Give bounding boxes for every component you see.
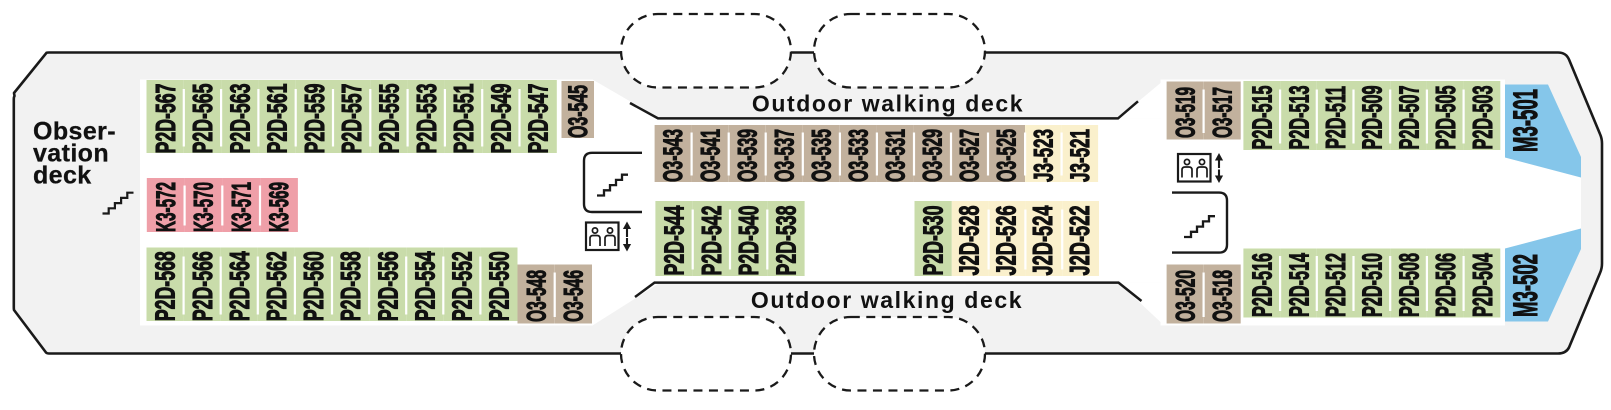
- svg-text:J2D-526: J2D-526: [992, 206, 1023, 276]
- svg-text:J3-523: J3-523: [1028, 129, 1058, 182]
- svg-text:P2D-509: P2D-509: [1356, 86, 1388, 150]
- svg-text:P2D-565: P2D-565: [187, 84, 218, 154]
- svg-text:deck: deck: [33, 162, 92, 190]
- svg-text:P2D-554: P2D-554: [409, 251, 440, 321]
- svg-text:P2D-558: P2D-558: [335, 251, 366, 321]
- svg-text:P2D-513: P2D-513: [1283, 86, 1315, 150]
- svg-text:P2D-556: P2D-556: [372, 251, 403, 321]
- svg-text:O3-529: O3-529: [917, 129, 947, 182]
- svg-text:P2D-561: P2D-561: [261, 84, 292, 154]
- svg-text:Outdoor walking deck: Outdoor walking deck: [752, 90, 1024, 116]
- svg-text:K3-572: K3-572: [150, 182, 181, 232]
- svg-text:P2D-515: P2D-515: [1246, 85, 1278, 149]
- svg-text:J2D-522: J2D-522: [1065, 206, 1096, 276]
- svg-text:P2D-506: P2D-506: [1429, 253, 1461, 317]
- svg-text:P2D-503: P2D-503: [1466, 86, 1498, 150]
- svg-text:P2D-530: P2D-530: [918, 206, 949, 276]
- svg-text:P2D-555: P2D-555: [373, 84, 404, 154]
- svg-text:P2D-507: P2D-507: [1393, 86, 1425, 150]
- svg-text:P2D-540: P2D-540: [733, 206, 764, 276]
- svg-text:P2D-560: P2D-560: [298, 251, 329, 321]
- svg-text:P2D-516: P2D-516: [1246, 253, 1278, 317]
- svg-text:O3-545: O3-545: [563, 85, 593, 138]
- svg-text:P2D-568: P2D-568: [150, 251, 181, 321]
- svg-text:P2D-511: P2D-511: [1319, 86, 1351, 149]
- svg-text:P2D-514: P2D-514: [1283, 253, 1315, 317]
- svg-text:P2D-504: P2D-504: [1466, 253, 1498, 317]
- svg-text:M3-502: M3-502: [1506, 254, 1544, 317]
- svg-text:P2D-510: P2D-510: [1356, 253, 1388, 317]
- svg-text:P2D-552: P2D-552: [446, 251, 477, 321]
- svg-text:P2D-505: P2D-505: [1429, 85, 1461, 149]
- svg-text:K3-571: K3-571: [226, 182, 257, 232]
- svg-text:O3-543: O3-543: [658, 129, 688, 182]
- svg-text:O3-517: O3-517: [1207, 87, 1238, 138]
- svg-text:P2D-542: P2D-542: [696, 206, 727, 276]
- svg-text:P2D-544: P2D-544: [658, 206, 689, 276]
- svg-text:P2D-551: P2D-551: [448, 84, 479, 154]
- svg-text:J2D-528: J2D-528: [955, 206, 986, 276]
- svg-text:O3-546: O3-546: [558, 270, 589, 322]
- svg-text:O3-535: O3-535: [806, 129, 836, 182]
- svg-text:K3-569: K3-569: [264, 182, 295, 232]
- svg-text:P2D-512: P2D-512: [1319, 253, 1351, 317]
- svg-text:J2D-524: J2D-524: [1028, 205, 1059, 276]
- svg-text:O3-525: O3-525: [991, 129, 1021, 182]
- svg-text:M3-501: M3-501: [1506, 89, 1544, 152]
- svg-text:P2D-564: P2D-564: [224, 251, 255, 321]
- svg-text:P2D-549: P2D-549: [485, 84, 516, 154]
- svg-text:P2D-538: P2D-538: [770, 206, 801, 276]
- svg-text:O3-533: O3-533: [843, 129, 873, 182]
- svg-text:O3-531: O3-531: [880, 129, 910, 182]
- svg-text:P2D-508: P2D-508: [1393, 253, 1425, 317]
- svg-text:O3-537: O3-537: [769, 129, 799, 182]
- svg-text:O3-548: O3-548: [521, 270, 552, 322]
- svg-text:P2D-547: P2D-547: [523, 84, 554, 154]
- svg-text:P2D-562: P2D-562: [261, 251, 292, 321]
- svg-text:P2D-559: P2D-559: [299, 84, 330, 154]
- svg-text:K3-570: K3-570: [188, 182, 219, 232]
- svg-text:P2D-566: P2D-566: [187, 251, 218, 321]
- svg-text:O3-541: O3-541: [695, 129, 725, 182]
- svg-text:O3-518: O3-518: [1207, 270, 1238, 322]
- svg-text:J3-521: J3-521: [1065, 129, 1095, 182]
- svg-text:O3-520: O3-520: [1170, 270, 1201, 322]
- svg-text:P2D-550: P2D-550: [483, 251, 514, 321]
- svg-text:P2D-563: P2D-563: [224, 84, 255, 154]
- svg-text:Outdoor walking deck: Outdoor walking deck: [751, 287, 1023, 313]
- svg-text:O3-527: O3-527: [954, 129, 984, 182]
- svg-text:P2D-557: P2D-557: [336, 84, 367, 154]
- svg-text:P2D-567: P2D-567: [150, 84, 181, 154]
- svg-text:O3-519: O3-519: [1170, 87, 1201, 138]
- svg-text:O3-539: O3-539: [732, 129, 762, 182]
- svg-text:P2D-553: P2D-553: [411, 84, 442, 154]
